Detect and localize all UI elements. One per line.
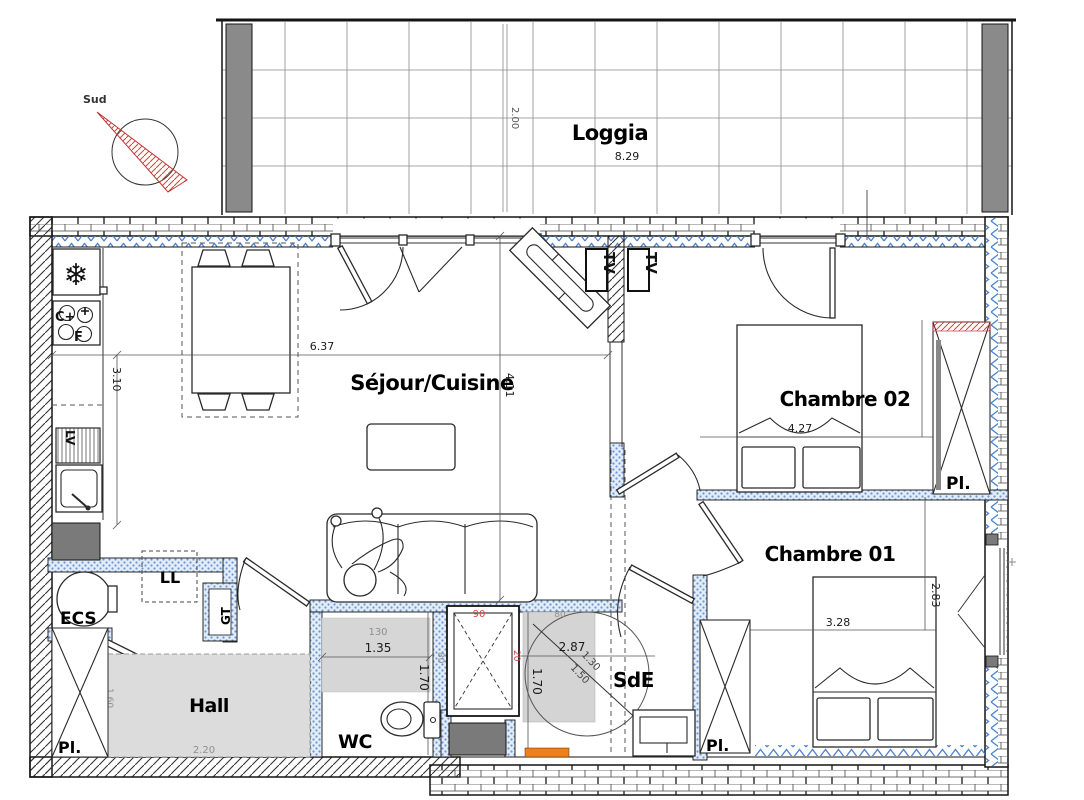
- compass-rose: Sud: [83, 93, 187, 192]
- living-height-dim: 4.11: [503, 373, 516, 398]
- living-hall-door: [238, 558, 310, 610]
- bedroom2-label: Chambre 02: [780, 387, 911, 411]
- dishwasher-label: LV: [63, 430, 77, 446]
- bedroom-2: Chambre 02 4.27 2.84 Pl.: [700, 320, 1008, 494]
- hall-width-dim: 2.20: [193, 745, 215, 756]
- stove-label-2: F: [74, 330, 83, 345]
- washing-machine-label: LL: [160, 568, 180, 587]
- bathroom-door: [618, 565, 695, 637]
- kitchen-area: ❄ C+ F LV: [52, 248, 107, 560]
- bedroom1-height-dim: 2.83: [929, 583, 942, 608]
- shower-dim-red: 90: [473, 609, 486, 620]
- hall: Hall 2.20 1.60 Pl.: [52, 628, 310, 757]
- window-bedroom2-north: [751, 234, 845, 318]
- duct-label: GT: [219, 606, 233, 625]
- bathroom-top-dim-gray: 80: [554, 610, 566, 620]
- loggia-pillar-left: [226, 24, 252, 212]
- closet-bedroom2: Pl.: [933, 322, 990, 494]
- water-heater-label: ECS: [60, 609, 97, 629]
- bathroom-height-dim: 1.70: [530, 668, 544, 695]
- kitchen-sink: [56, 465, 102, 512]
- loggia-label: Loggia: [572, 121, 648, 145]
- bedroom1-label: Chambre 01: [765, 542, 896, 566]
- threshold-orange: [525, 748, 569, 757]
- living-label: Séjour/Cuisine: [350, 371, 514, 395]
- bedroom1-door: [699, 502, 743, 576]
- kitchen-unit-dark: [52, 523, 100, 560]
- shower: 90: [447, 606, 519, 716]
- hall-closet-label: Pl.: [58, 738, 81, 757]
- floor-plan-page: Sud Loggia 8.29 2.00: [0, 0, 1084, 800]
- kitchen-depth-dim: 3.10: [110, 367, 123, 392]
- bathroom: 90 1.30 1.50 2.87 1.70 80 20 SdE: [447, 606, 695, 757]
- living-width-dim: 6.37: [310, 340, 335, 353]
- hall-label: Hall: [189, 695, 229, 717]
- bedroom2-width-dim: 4.27: [788, 422, 813, 435]
- stove-label-1: C+: [55, 310, 75, 325]
- closet-bedroom1: Pl.: [700, 620, 750, 755]
- wc-side-dim-gray: 80: [435, 652, 445, 664]
- loggia-tile-grid: [222, 22, 1012, 214]
- wc-room: 130 1.35 1.70 80 WC: [318, 612, 445, 755]
- hall-closet: Pl.: [52, 628, 108, 757]
- loggia: Loggia 8.29 2.00: [216, 20, 1016, 240]
- wc-width-dim-gray: 130: [368, 627, 387, 638]
- compass-needle-icon: [97, 112, 187, 192]
- wc-label: WC: [338, 731, 372, 753]
- wc-height-dim: 1.70: [417, 664, 431, 691]
- floor-plan: Sud Loggia 8.29 2.00: [0, 0, 1084, 800]
- bathroom-unit-dark: [449, 723, 506, 755]
- living-room: TV TV Séjour/Cuisine: [182, 228, 660, 602]
- loggia-pillar-right: [982, 24, 1008, 212]
- bedroom2-closet-label: Pl.: [946, 474, 971, 494]
- left-wall: [30, 217, 52, 777]
- bed-bedroom1: [813, 577, 936, 747]
- coffee-table: [367, 424, 455, 470]
- stove: C+ F: [53, 301, 100, 345]
- dining-table: [192, 250, 290, 410]
- washbasin: [633, 710, 695, 756]
- bathroom-width-dim: 2.87: [559, 640, 586, 654]
- bathroom-label: SdE: [613, 668, 654, 692]
- toilet: [381, 702, 440, 738]
- tv-outlet-2: TV: [628, 249, 660, 291]
- bedroom1-closet-label: Pl.: [706, 736, 729, 755]
- compass-label: Sud: [83, 93, 107, 106]
- loggia-width-dim: 8.29: [615, 150, 640, 163]
- window-living-north: [331, 234, 541, 310]
- technical-duct: GT: [203, 583, 237, 641]
- bathroom-left-dim-red: 20: [511, 650, 521, 662]
- loggia-depth-dim: 2.00: [509, 107, 520, 129]
- tv-label-2: TV: [642, 252, 660, 274]
- dishwasher: LV: [56, 428, 100, 463]
- tv-label-1: TV: [600, 252, 618, 274]
- fridge-snowflake-icon: ❄: [63, 258, 88, 293]
- bedroom1-width-dim: 3.28: [826, 616, 851, 629]
- bedroom-1: Chambre 01 3.28 2.83 Pl.: [700, 497, 942, 755]
- bedroom2-door: [617, 453, 700, 494]
- wc-width-dim: 1.35: [365, 641, 392, 655]
- bottom-wall-left: [30, 757, 460, 777]
- bottom-wall-right: [430, 765, 1008, 795]
